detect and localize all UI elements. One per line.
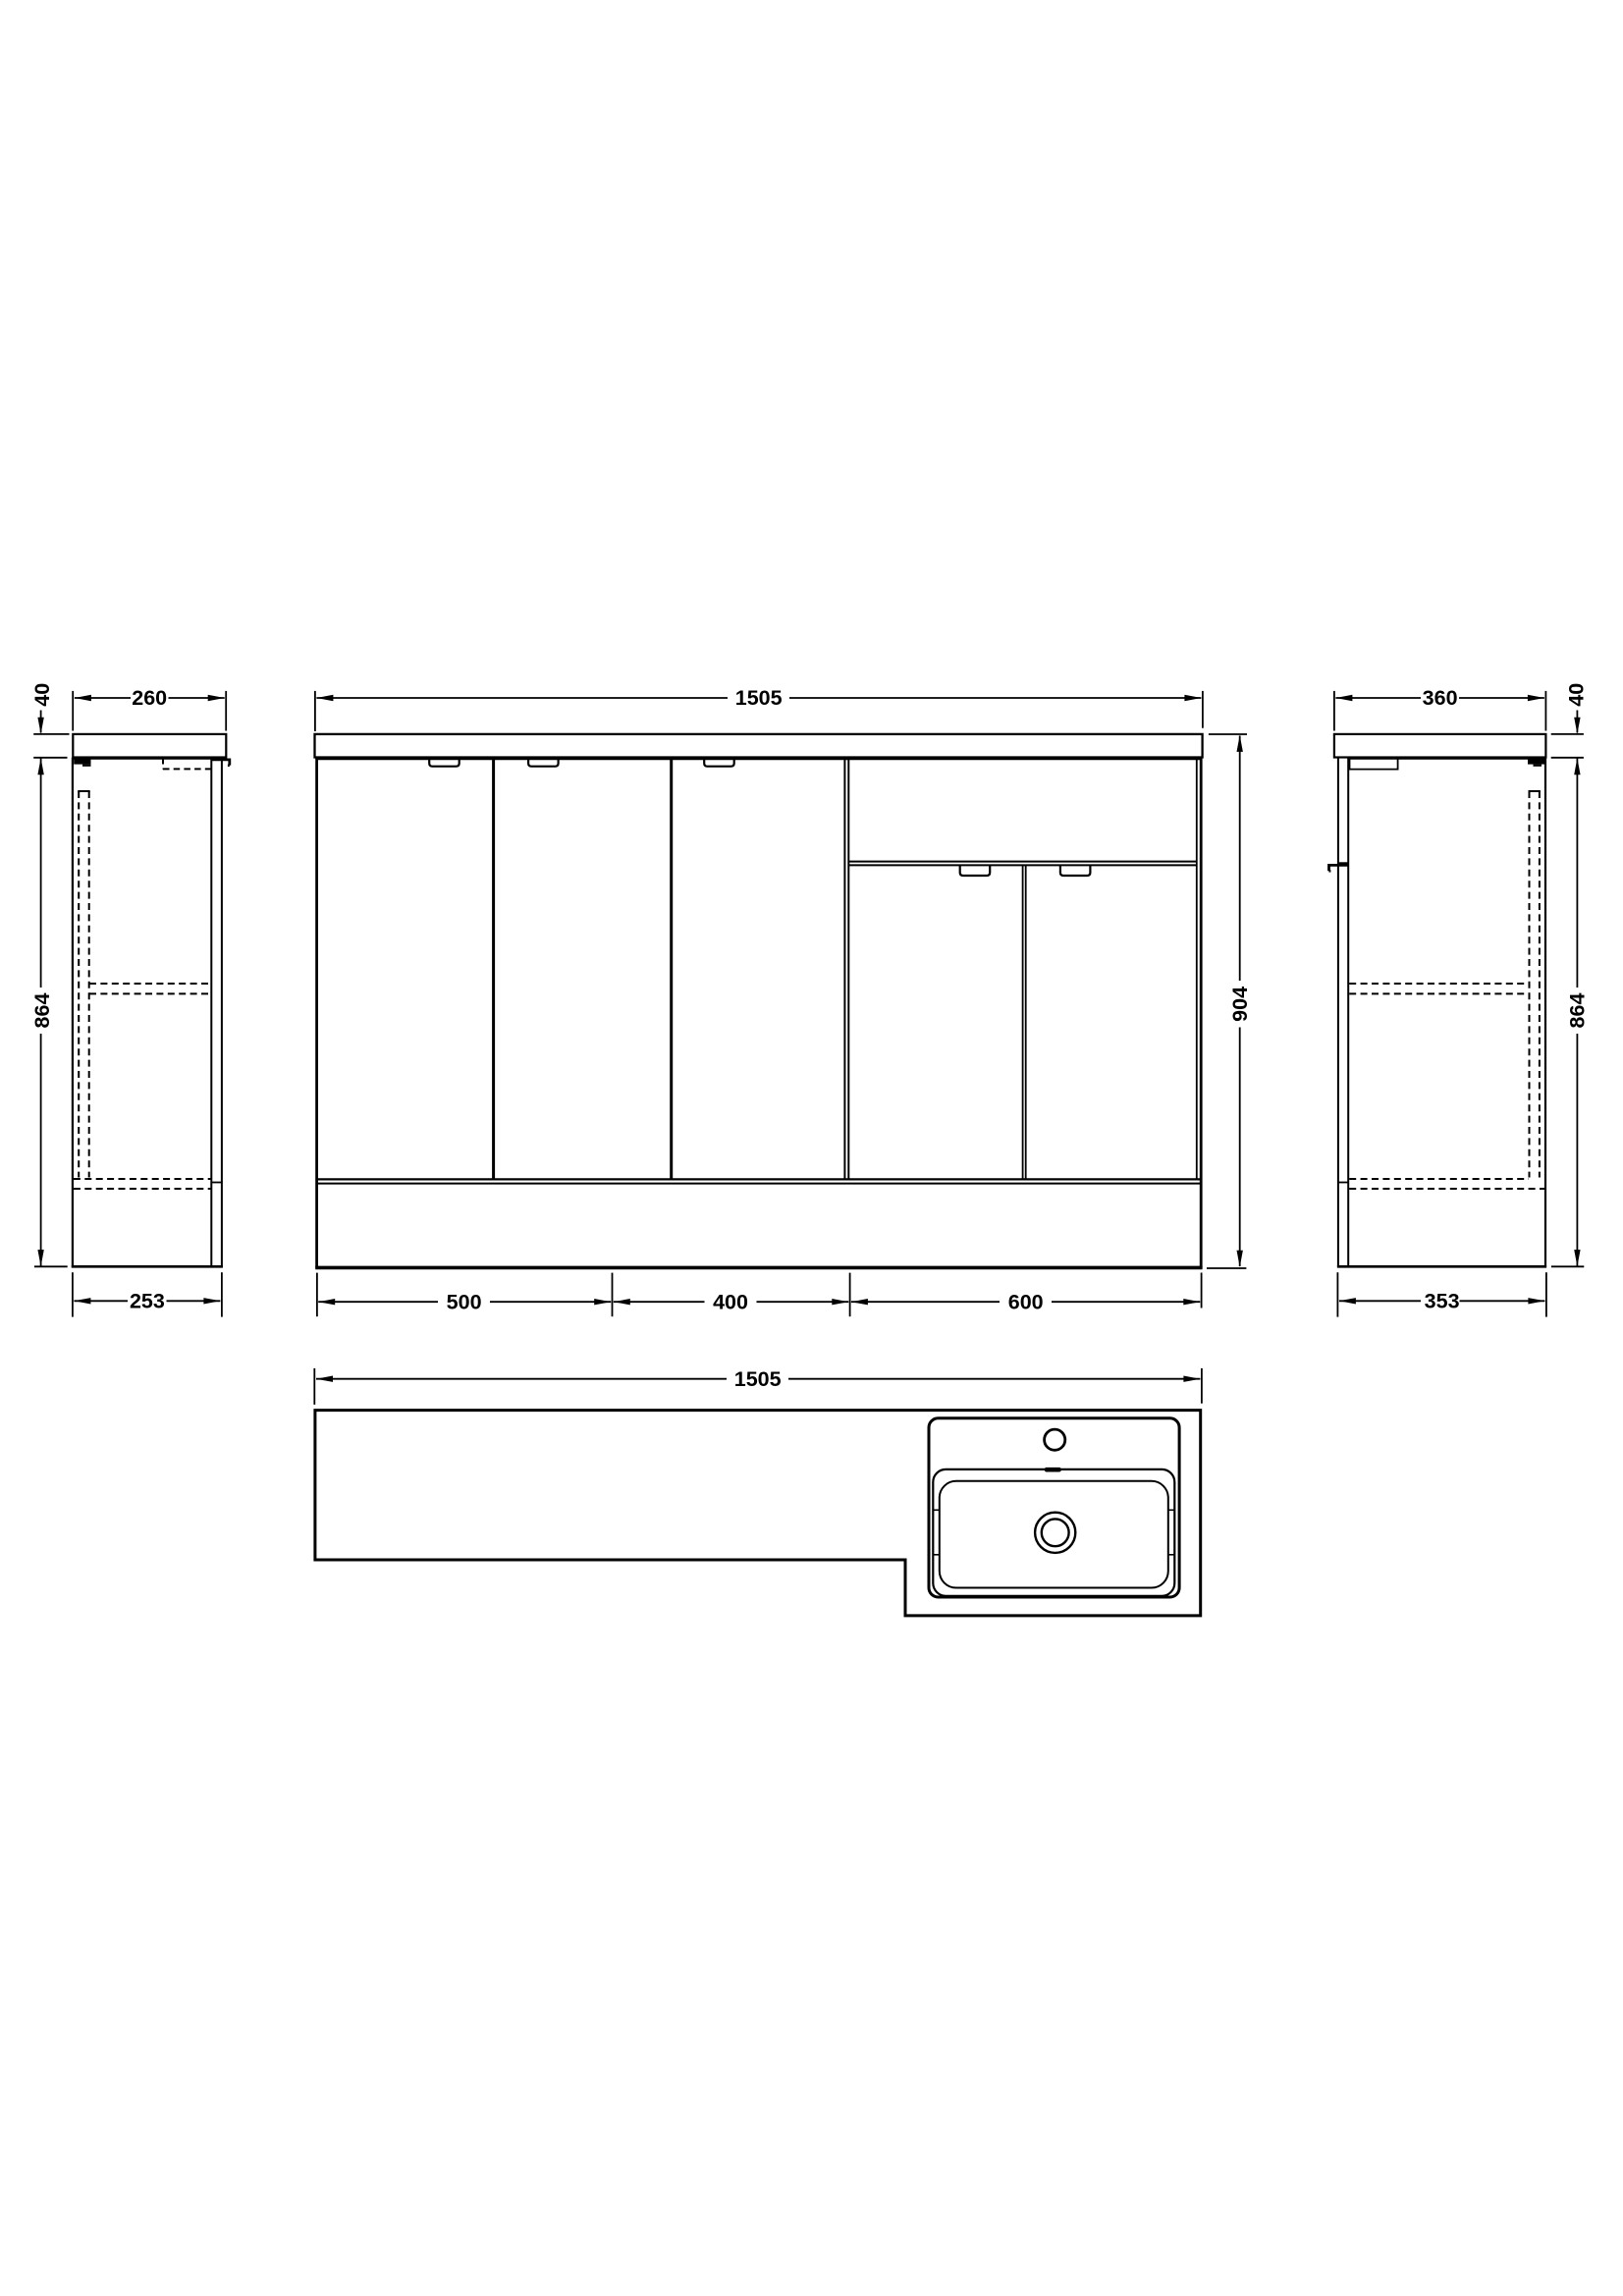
svg-text:1505: 1505 bbox=[734, 1367, 782, 1391]
svg-text:1505: 1505 bbox=[735, 686, 783, 710]
svg-text:360: 360 bbox=[1423, 686, 1458, 710]
svg-text:400: 400 bbox=[713, 1290, 748, 1313]
svg-text:40: 40 bbox=[30, 683, 54, 707]
svg-text:260: 260 bbox=[132, 686, 167, 710]
svg-text:353: 353 bbox=[1425, 1290, 1460, 1313]
svg-text:600: 600 bbox=[1008, 1290, 1044, 1313]
svg-text:253: 253 bbox=[130, 1290, 165, 1313]
svg-text:40: 40 bbox=[1564, 683, 1588, 707]
svg-text:904: 904 bbox=[1228, 987, 1252, 1022]
svg-text:864: 864 bbox=[1566, 993, 1590, 1029]
svg-text:864: 864 bbox=[30, 993, 54, 1029]
svg-text:500: 500 bbox=[447, 1290, 482, 1313]
